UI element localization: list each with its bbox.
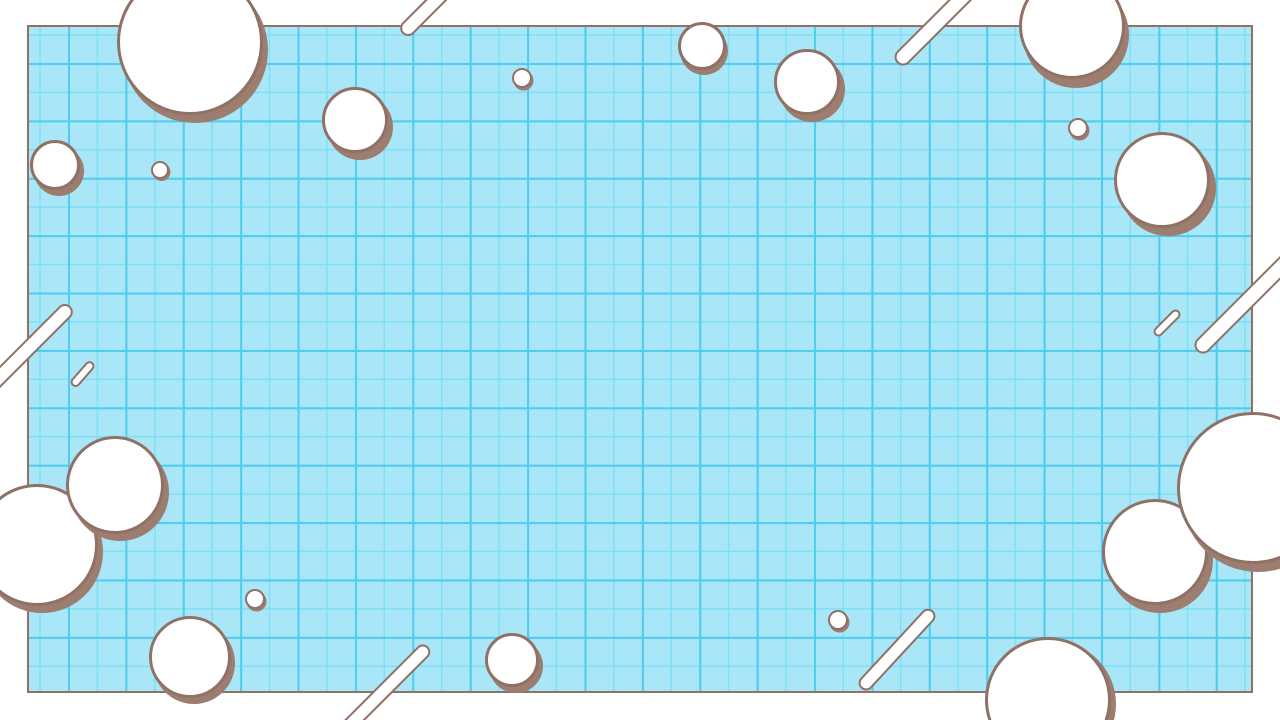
bubble <box>30 140 80 190</box>
bubble <box>512 68 532 88</box>
bubble <box>828 610 848 630</box>
bubble <box>149 616 231 698</box>
stick <box>0 301 76 434</box>
bubble <box>485 633 539 687</box>
stick <box>319 641 433 720</box>
shapes-layer <box>0 0 1280 720</box>
stick <box>397 0 474 39</box>
stick <box>891 0 1000 69</box>
bubble <box>322 87 388 153</box>
bubble <box>1114 132 1210 228</box>
bubble <box>1019 0 1125 79</box>
bubble <box>774 49 840 115</box>
bubble <box>151 161 169 179</box>
bubble <box>678 22 726 70</box>
bubble <box>245 589 265 609</box>
stick <box>1152 307 1183 338</box>
bubble <box>1068 118 1088 138</box>
bubble <box>985 637 1111 720</box>
bubble <box>66 436 164 534</box>
stick <box>855 605 938 693</box>
stick <box>69 359 97 389</box>
slide-background <box>0 0 1280 720</box>
bubble <box>117 0 263 115</box>
stick <box>1191 234 1280 357</box>
